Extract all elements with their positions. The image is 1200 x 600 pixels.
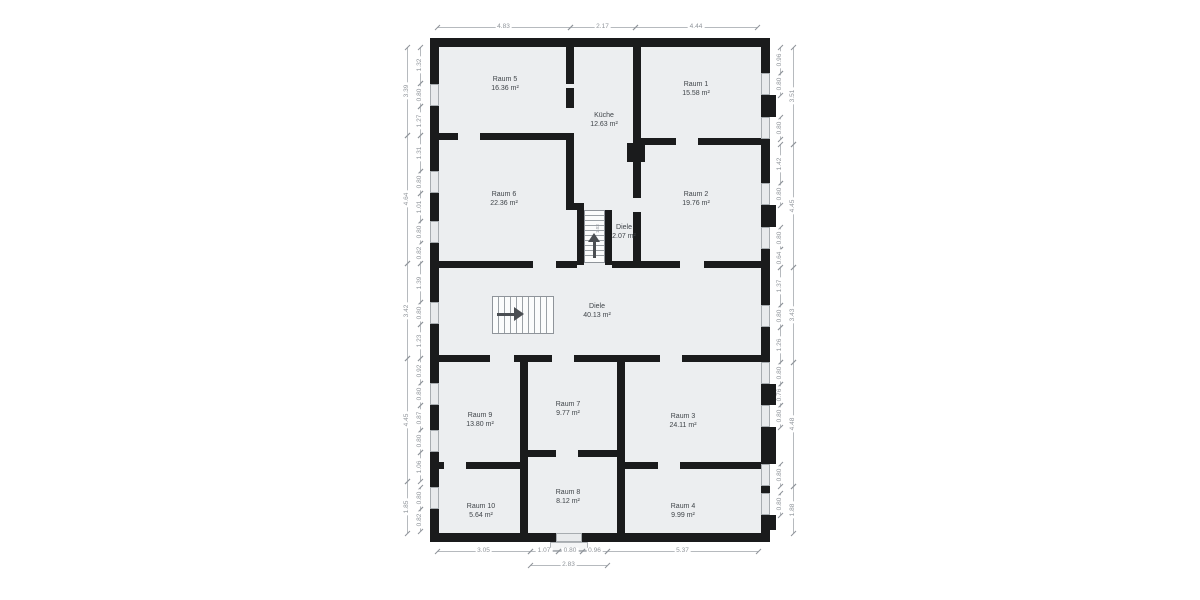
dimension-label: 2.83 (560, 562, 577, 569)
dimension-label: 1.06 (417, 458, 424, 475)
room-name: Raum 2 (682, 190, 710, 199)
stair-tread (585, 215, 604, 216)
dimension-label: 1.32 (417, 57, 424, 74)
floor-plan-canvas: 1.03Raum 516.36 m²Küche12.63 m²Raum 115.… (0, 0, 1200, 600)
wall-segment (430, 38, 770, 47)
dimension-label: 0.80 (417, 386, 424, 403)
room-label: Raum 622.36 m² (490, 190, 518, 208)
dimension-label: 4.83 (495, 24, 512, 31)
wall-segment (617, 358, 625, 533)
dimension-label: 1.07 (536, 548, 553, 555)
wall-segment (439, 355, 490, 362)
room-area: 15.58 m² (682, 89, 710, 98)
wall-segment (625, 462, 658, 469)
dimension-label: 0.80 (777, 365, 784, 382)
dimension-label: 1.31 (417, 145, 424, 162)
dimension-tick (791, 531, 797, 537)
room-area: 5.64 m² (467, 511, 495, 520)
room-name: Raum 10 (467, 502, 495, 511)
dimension-label: 4.45 (404, 411, 411, 428)
stair-tread (540, 297, 541, 333)
dimension-label: 1.85 (404, 499, 411, 516)
dimension-label: 1.37 (777, 278, 784, 295)
dimension-label: 0.80 (777, 496, 784, 513)
window-opening (761, 117, 770, 139)
room-label: Raum 219.76 m² (682, 190, 710, 208)
wall-pilaster (770, 515, 776, 530)
wall-segment (627, 143, 645, 162)
room-name: Raum 1 (682, 80, 710, 89)
dimension-label: 4.48 (790, 416, 797, 433)
window-opening (761, 183, 770, 205)
room-name: Raum 3 (669, 412, 696, 421)
wall-segment (612, 261, 680, 268)
stair-tread (528, 297, 529, 333)
dimension-tick (778, 484, 784, 490)
dimension-label: 0.92 (417, 362, 424, 379)
dimension-label: 2.17 (594, 24, 611, 31)
dimension-label: 1.23 (417, 333, 424, 350)
wall-segment (577, 203, 584, 265)
room-label: Raum 49.99 m² (671, 502, 696, 520)
room-name: Diele (583, 302, 611, 311)
dimension-label: 0.80 (417, 224, 424, 241)
wall-pilaster (770, 205, 776, 227)
room-label: Raum 105.64 m² (467, 502, 495, 520)
window-opening (430, 383, 439, 405)
window-opening (430, 221, 439, 243)
dimension-label: 3.42 (404, 302, 411, 319)
stair-arrow-icon (497, 313, 515, 316)
wall-segment (439, 462, 444, 469)
room-label: Diele2.07 m² (612, 223, 636, 241)
dimension-tick (778, 513, 784, 519)
wall-segment (430, 533, 770, 542)
window-opening (761, 305, 770, 327)
dimension-label: 4.45 (790, 197, 797, 214)
dimension-tick (418, 529, 424, 535)
wall-segment (520, 358, 528, 533)
dimension-label: 0.82 (417, 512, 424, 529)
window-opening (761, 493, 770, 515)
dimension-label: 3.39 (404, 83, 411, 100)
stair-tread (534, 297, 535, 333)
room-label: Raum 79.77 m² (556, 400, 581, 418)
dimension-label: 0.80 (777, 308, 784, 325)
room-name: Küche (590, 111, 618, 120)
wall-segment (633, 162, 641, 198)
dimension-label: 0.96 (777, 52, 784, 69)
wall-segment (566, 133, 574, 203)
dimension-label: 4.44 (688, 24, 705, 31)
window-opening (761, 405, 770, 427)
wall-segment (605, 210, 612, 265)
stair-arrow-icon (593, 242, 596, 258)
wall-segment (566, 88, 574, 108)
dimension-tick (778, 93, 784, 99)
window-opening (430, 487, 439, 509)
wall-segment (682, 355, 761, 362)
window-opening (430, 302, 439, 324)
dimension-label: 0.96 (586, 548, 603, 555)
room-area: 9.99 m² (671, 511, 696, 520)
room-area: 8.12 m² (556, 497, 581, 506)
dimension-label: 3.51 (790, 87, 797, 104)
room-area: 19.76 m² (682, 199, 710, 208)
room-label: Raum 516.36 m² (491, 75, 519, 93)
dimension-label: 0.80 (777, 467, 784, 484)
wall-segment (514, 355, 552, 362)
room-area: 22.36 m² (490, 199, 518, 208)
wall-segment (566, 47, 574, 84)
dimension-tick (756, 549, 762, 555)
room-name: Diele (612, 223, 636, 232)
dimension-label: 1.88 (790, 501, 797, 518)
dimension-label: 1.39 (417, 274, 424, 291)
room-area: 24.11 m² (669, 421, 696, 430)
dimension-tick (418, 479, 424, 485)
room-area: 12.63 m² (590, 120, 618, 129)
wall-segment (704, 261, 761, 268)
stair-dimension-label: 1.03 (596, 217, 604, 235)
dimension-label: 0.80 (777, 408, 784, 425)
dimension-tick (778, 203, 784, 209)
room-label: Raum 324.11 m² (669, 412, 696, 430)
dimension-label: 1.01 (417, 199, 424, 216)
room-name: Raum 7 (556, 400, 581, 409)
wall-segment (439, 133, 458, 140)
room-area: 16.36 m² (491, 84, 519, 93)
dimension-label: 0.80 (777, 120, 784, 137)
wall-segment (641, 138, 676, 145)
room-area: 13.80 m² (466, 420, 494, 429)
dimension-label: 0.80 (777, 186, 784, 203)
wall-segment (680, 462, 761, 469)
room-label: Raum 115.58 m² (682, 80, 710, 98)
stair-arrow-head-icon (514, 307, 524, 321)
room-name: Raum 8 (556, 488, 581, 497)
dimension-tick (755, 25, 761, 31)
wall-pilaster (770, 95, 776, 117)
dimension-label: 1.27 (417, 112, 424, 129)
window-opening (430, 430, 439, 452)
wall-segment (574, 355, 660, 362)
room-area: 2.07 m² (612, 232, 636, 241)
dimension-label: 0.80 (417, 174, 424, 191)
stair-tread (546, 297, 547, 333)
window-opening (761, 227, 770, 249)
wall-segment (528, 450, 556, 457)
dimension-label: 1.26 (777, 336, 784, 353)
wall-pilaster (770, 427, 776, 464)
room-name: Raum 9 (466, 411, 494, 420)
dimension-label: 1.42 (777, 155, 784, 172)
wall-segment (466, 462, 520, 469)
room-area: 40.13 m² (583, 311, 611, 320)
dimension-label: 0.80 (417, 490, 424, 507)
dimension-label: 0.80 (777, 230, 784, 247)
room-name: Raum 5 (491, 75, 519, 84)
dimension-label: 0.76 (777, 386, 784, 403)
dimension-label: 3.43 (790, 306, 797, 323)
wall-segment (578, 450, 617, 457)
dimension-label: 0.80 (417, 433, 424, 450)
dimension-label: 0.80 (562, 548, 579, 555)
room-label: Raum 913.80 m² (466, 411, 494, 429)
wall-segment (439, 261, 533, 268)
dimension-tick (405, 531, 411, 537)
dimension-label: 0.80 (417, 86, 424, 103)
room-label: Küche12.63 m² (590, 111, 618, 129)
window-opening (761, 362, 770, 384)
room-name: Raum 6 (490, 190, 518, 199)
dimension-label: 5.37 (674, 548, 691, 555)
dimension-tick (605, 563, 611, 569)
wall-segment (556, 261, 577, 268)
dimension-label: 3.05 (475, 548, 492, 555)
room-name: Raum 4 (671, 502, 696, 511)
dimension-tick (778, 425, 784, 431)
dimension-label: 0.80 (777, 76, 784, 93)
window-opening (430, 171, 439, 193)
window-opening (430, 84, 439, 106)
room-area: 9.77 m² (556, 409, 581, 418)
wall-segment (698, 138, 761, 145)
wall-segment (633, 47, 641, 143)
wall-segment (480, 133, 566, 140)
window-opening (761, 464, 770, 486)
dimension-label: 0.87 (417, 409, 424, 426)
wall-segment (430, 38, 439, 542)
room-label: Raum 88.12 m² (556, 488, 581, 506)
dimension-label: 0.80 (417, 305, 424, 322)
room-label: Diele40.13 m² (583, 302, 611, 320)
dimension-label: 0.82 (417, 245, 424, 262)
dimension-label: 4.64 (404, 191, 411, 208)
window-opening (761, 73, 770, 95)
entry-opening (556, 533, 582, 542)
